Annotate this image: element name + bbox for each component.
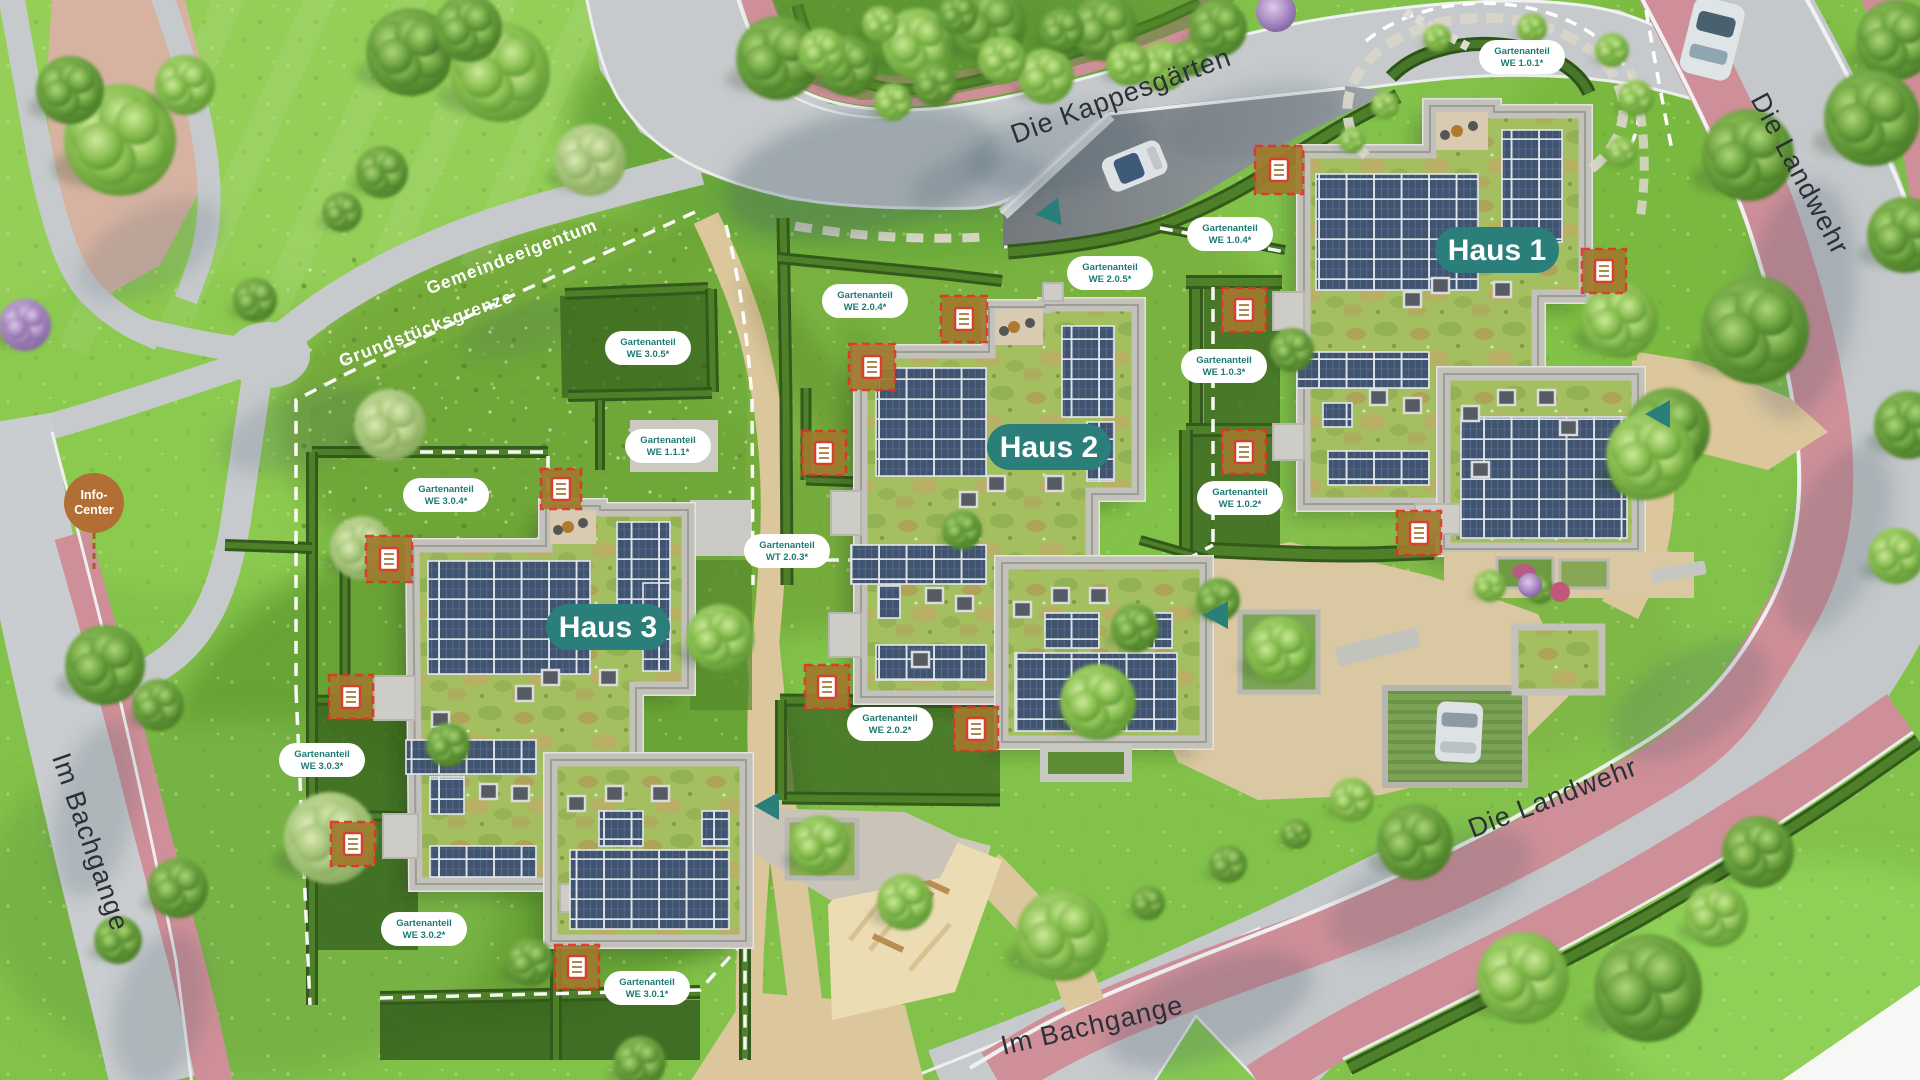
- svg-text:Gartenanteil: Gartenanteil: [294, 749, 349, 760]
- svg-text:WE 2.0.4*: WE 2.0.4*: [844, 302, 887, 313]
- svg-text:Gartenanteil: Gartenanteil: [1196, 355, 1251, 366]
- svg-text:Gartenanteil: Gartenanteil: [418, 484, 473, 495]
- svg-text:WE 2.0.2*: WE 2.0.2*: [869, 725, 912, 736]
- svg-text:Gartenanteil: Gartenanteil: [1202, 223, 1257, 234]
- svg-text:WE 3.0.2*: WE 3.0.2*: [403, 930, 446, 941]
- svg-text:Haus 3: Haus 3: [559, 611, 657, 644]
- svg-text:Haus 2: Haus 2: [1000, 431, 1098, 464]
- svg-text:Gartenanteil: Gartenanteil: [759, 540, 814, 551]
- svg-text:WE 2.0.5*: WE 2.0.5*: [1089, 274, 1132, 285]
- svg-text:Gartenanteil: Gartenanteil: [1494, 46, 1549, 57]
- svg-text:Gartenanteil: Gartenanteil: [1082, 262, 1137, 273]
- svg-text:WE 3.0.1*: WE 3.0.1*: [626, 989, 669, 1000]
- svg-text:Gartenanteil: Gartenanteil: [620, 337, 675, 348]
- svg-text:Gartenanteil: Gartenanteil: [837, 290, 892, 301]
- svg-text:WE 1.0.2*: WE 1.0.2*: [1219, 499, 1262, 510]
- svg-text:WE 1.0.4*: WE 1.0.4*: [1209, 235, 1252, 246]
- svg-text:WE 1.0.1*: WE 1.0.1*: [1501, 58, 1544, 69]
- svg-text:Gartenanteil: Gartenanteil: [1212, 487, 1267, 498]
- svg-text:WE 1.0.3*: WE 1.0.3*: [1203, 367, 1246, 378]
- svg-text:Gartenanteil: Gartenanteil: [862, 713, 917, 724]
- svg-text:Haus 1: Haus 1: [1448, 234, 1546, 267]
- svg-text:Gartenanteil: Gartenanteil: [640, 435, 695, 446]
- svg-text:Gartenanteil: Gartenanteil: [619, 977, 674, 988]
- svg-text:WE 3.0.3*: WE 3.0.3*: [301, 761, 344, 772]
- svg-text:Gartenanteil: Gartenanteil: [396, 918, 451, 929]
- svg-text:Info-: Info-: [80, 488, 107, 502]
- svg-text:WE 3.0.4*: WE 3.0.4*: [425, 496, 468, 507]
- svg-text:WT 2.0.3*: WT 2.0.3*: [766, 552, 809, 563]
- svg-text:WE 1.1.1*: WE 1.1.1*: [647, 447, 690, 458]
- svg-text:Center: Center: [74, 503, 114, 517]
- svg-text:WE 3.0.5*: WE 3.0.5*: [627, 349, 670, 360]
